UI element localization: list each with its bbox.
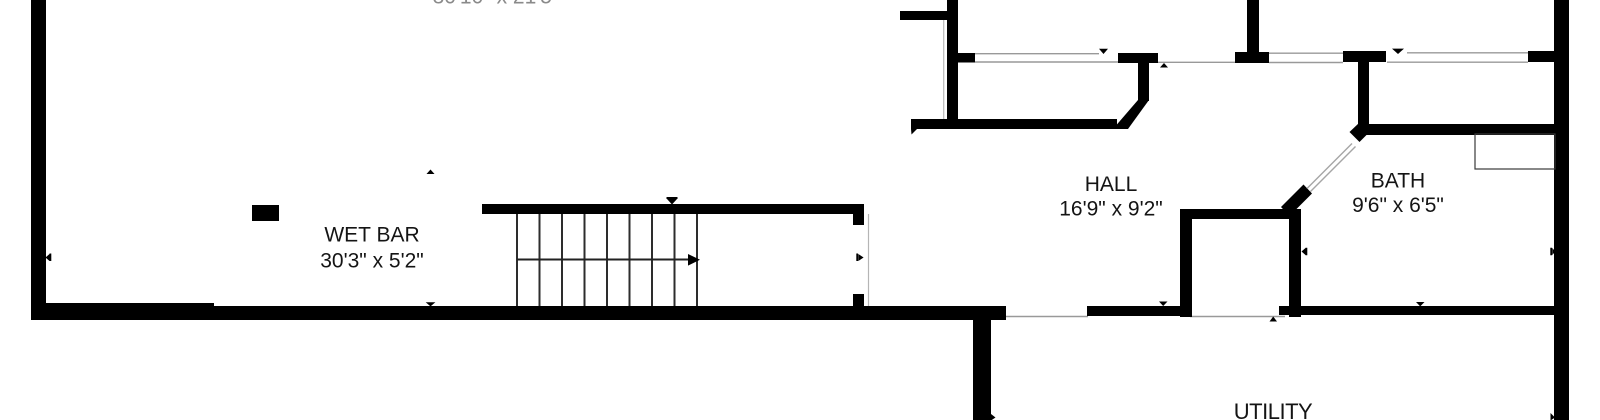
svg-text:WET BAR: WET BAR bbox=[324, 224, 419, 247]
svg-text:30'10" x 21'5": 30'10" x 21'5" bbox=[433, 0, 560, 9]
svg-text:16'9" x 9'2": 16'9" x 9'2" bbox=[1059, 197, 1163, 220]
svg-text:9'6" x 6'5": 9'6" x 6'5" bbox=[1352, 194, 1444, 217]
svg-text:UTILITY: UTILITY bbox=[1234, 399, 1313, 420]
svg-text:BATH: BATH bbox=[1371, 170, 1425, 193]
svg-text:30'3" x 5'2": 30'3" x 5'2" bbox=[320, 249, 424, 272]
svg-text:HALL: HALL bbox=[1085, 173, 1138, 196]
